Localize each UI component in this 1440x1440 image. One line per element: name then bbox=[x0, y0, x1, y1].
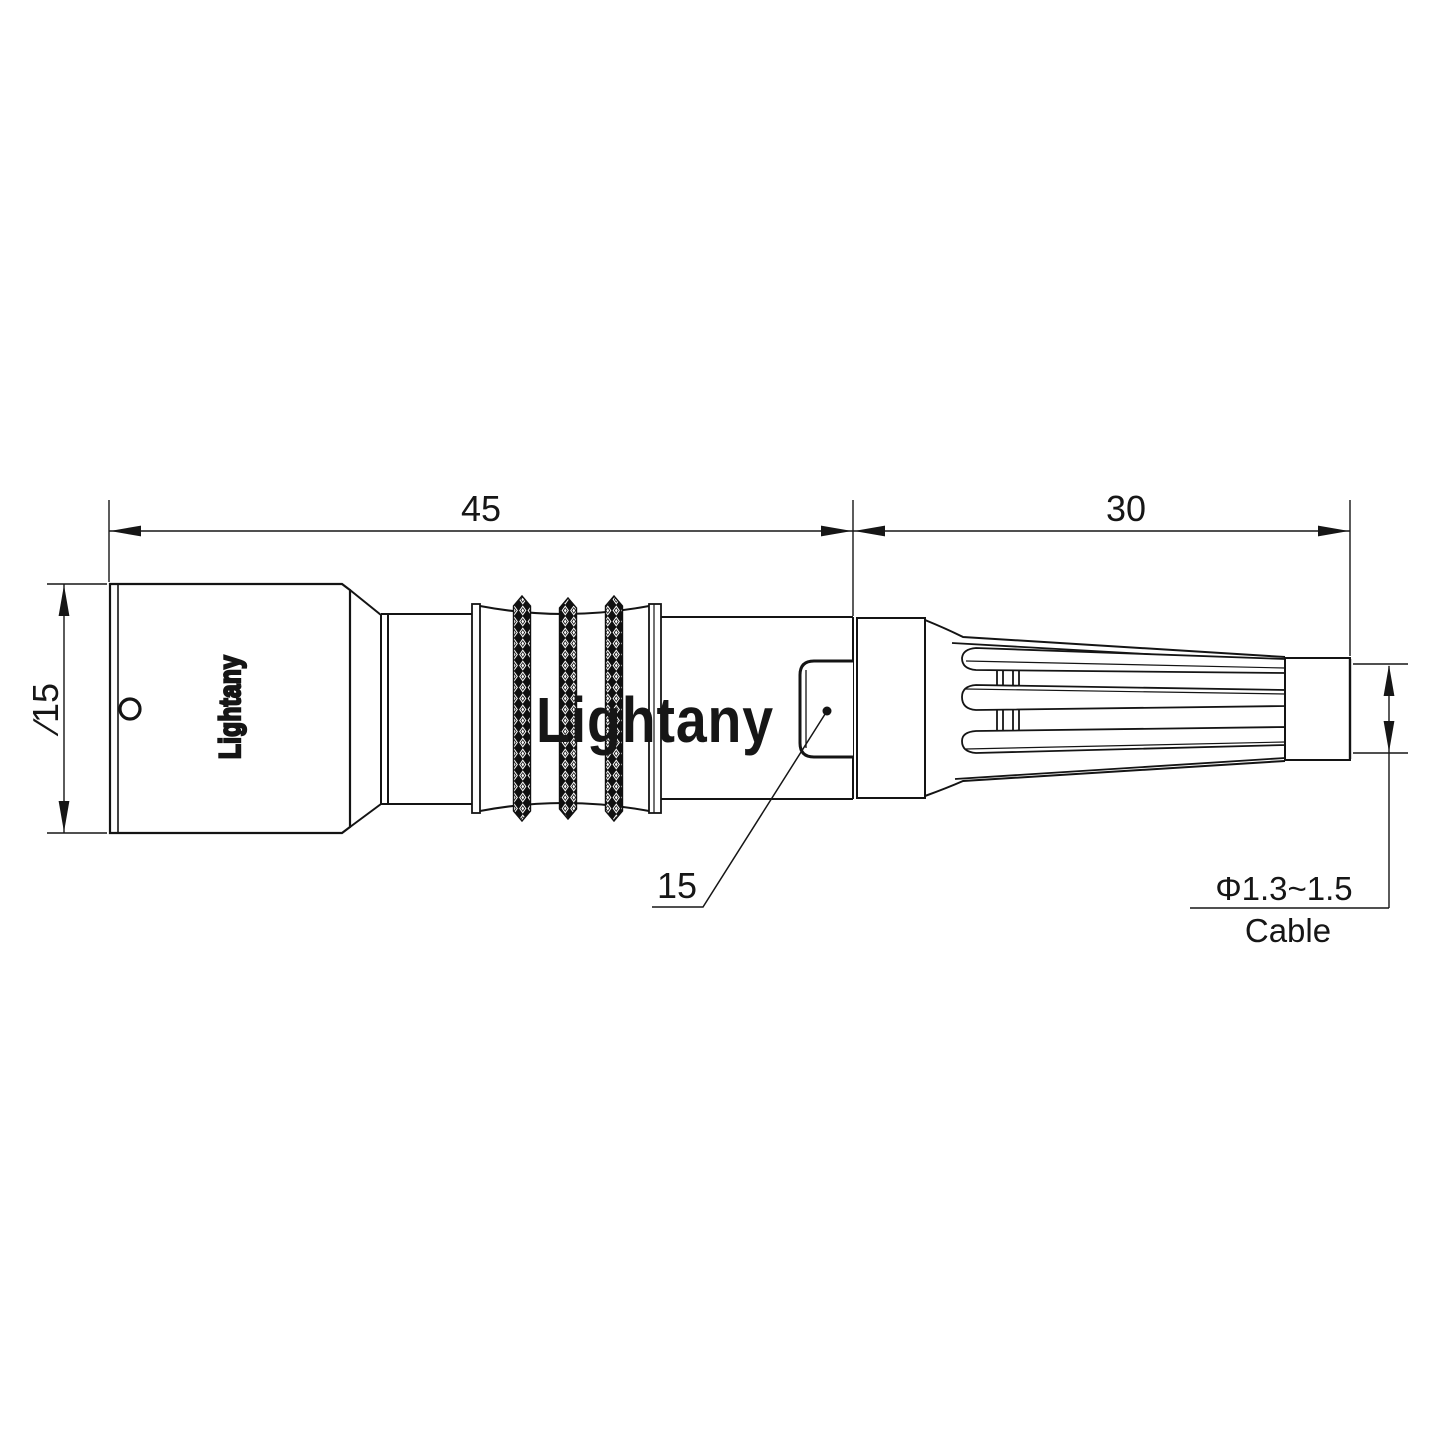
strain-relief-boot bbox=[857, 618, 1285, 798]
boot-fin-blade bbox=[962, 685, 1285, 710]
cable-label: Cable bbox=[1245, 912, 1331, 949]
cable-diameter-label: Φ1.3~1.5 bbox=[1215, 870, 1352, 907]
mid-cylinder bbox=[381, 614, 472, 804]
arrowhead bbox=[59, 801, 70, 832]
arrowhead bbox=[1318, 526, 1349, 537]
arrowhead bbox=[1384, 665, 1395, 696]
shoulder-chamfer-top bbox=[350, 590, 381, 615]
knurl-band bbox=[514, 596, 531, 821]
boot-bottom-fin-edge bbox=[955, 758, 1285, 779]
boot-fin-blade bbox=[962, 727, 1285, 753]
arrowhead bbox=[59, 585, 70, 616]
dim-body-diameter-label: ∕15 bbox=[25, 683, 66, 737]
barrel-brand-text: Lightany bbox=[214, 655, 247, 759]
knurl-flange-left bbox=[472, 604, 480, 813]
arrowhead bbox=[854, 526, 885, 537]
window-detail-label: 15 bbox=[657, 865, 697, 906]
arrowhead bbox=[821, 526, 852, 537]
arrowhead bbox=[1384, 721, 1395, 752]
arrowhead bbox=[110, 526, 141, 537]
boot-collar bbox=[857, 618, 925, 798]
boot-fin-blade bbox=[962, 648, 1285, 673]
watermark-text: Lightany bbox=[536, 684, 774, 756]
boot-cone-bottom bbox=[925, 761, 1285, 796]
keying-hole bbox=[120, 699, 140, 719]
dim-total-length-label: 45 bbox=[461, 488, 501, 529]
ferrule-outline bbox=[1285, 658, 1350, 760]
shoulder-chamfer-bottom bbox=[350, 804, 381, 827]
cable-ferrule bbox=[1285, 658, 1350, 760]
connector-technical-drawing: 45 30 ∕15 Lightany bbox=[0, 0, 1440, 1440]
drawing-canvas: 45 30 ∕15 Lightany bbox=[0, 0, 1440, 1440]
dim-boot-length-label: 30 bbox=[1106, 488, 1146, 529]
